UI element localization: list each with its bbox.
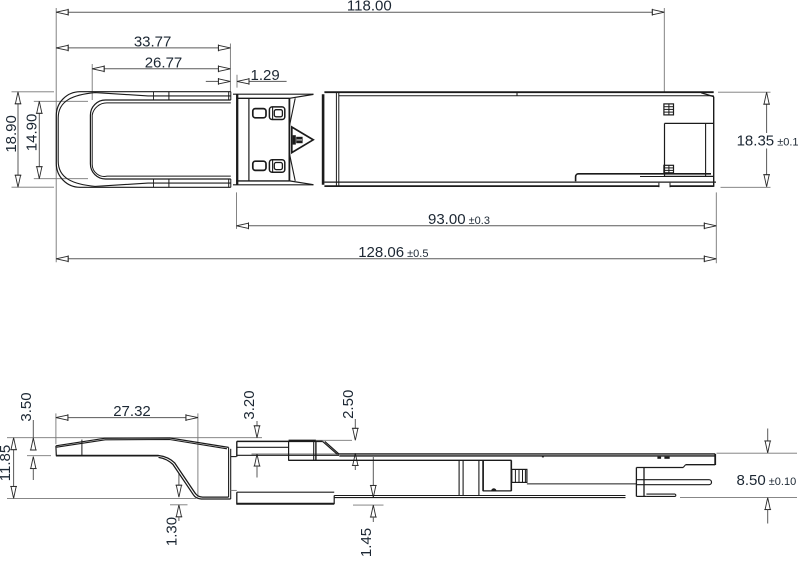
svg-text:11.85: 11.85 bbox=[0, 445, 14, 481]
svg-text:18.90: 18.90 bbox=[3, 115, 20, 153]
svg-text:2.50: 2.50 bbox=[340, 390, 357, 419]
svg-text:1.30: 1.30 bbox=[163, 517, 180, 546]
svg-text:26.77: 26.77 bbox=[145, 54, 183, 71]
svg-text:27.32: 27.32 bbox=[113, 403, 151, 420]
svg-text:118.00: 118.00 bbox=[347, 0, 392, 15]
svg-text:33.77: 33.77 bbox=[134, 33, 172, 50]
svg-text:1.29: 1.29 bbox=[251, 67, 280, 84]
svg-text:14.90: 14.90 bbox=[24, 114, 41, 152]
svg-text:3.20: 3.20 bbox=[241, 390, 258, 419]
svg-text:3.50: 3.50 bbox=[18, 392, 35, 421]
svg-text:1.45: 1.45 bbox=[358, 528, 375, 557]
